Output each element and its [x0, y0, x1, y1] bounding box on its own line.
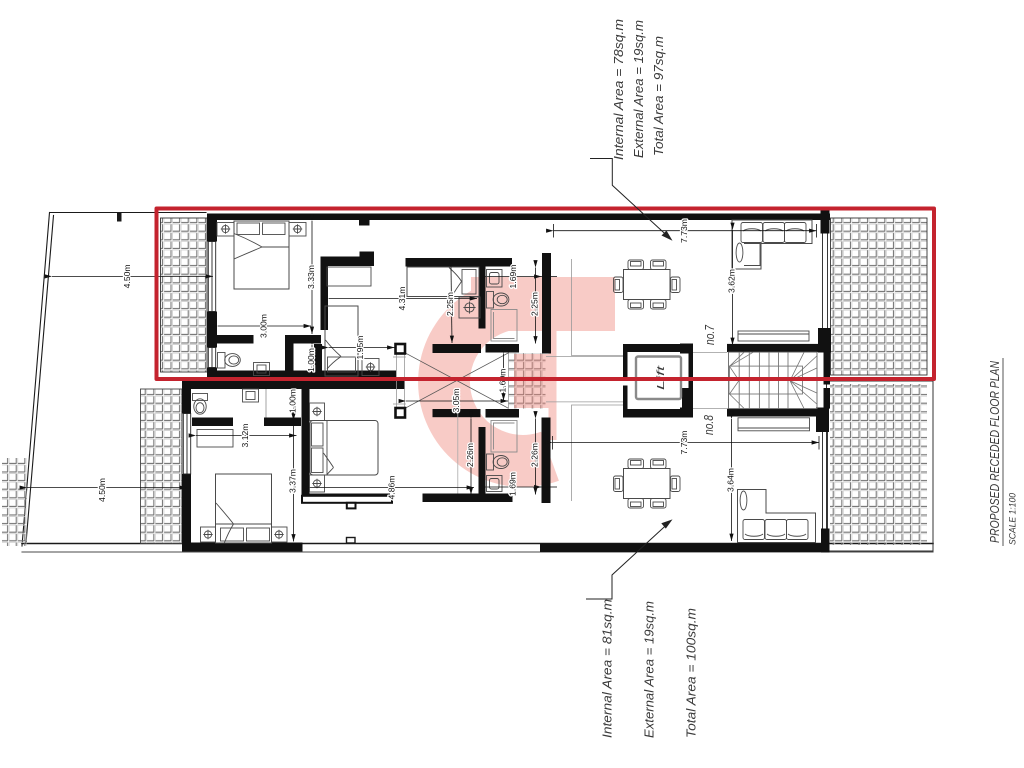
svg-text:1.95m: 1.95m: [355, 336, 365, 360]
svg-text:3.05m: 3.05m: [451, 389, 461, 413]
svg-text:no.8: no.8: [702, 415, 716, 435]
svg-text:Total Area = 97sq.m: Total Area = 97sq.m: [651, 36, 666, 156]
svg-text:3.37m: 3.37m: [288, 469, 298, 493]
svg-text:4.50m: 4.50m: [97, 478, 107, 502]
svg-text:External Area = 19sq.m: External Area = 19sq.m: [642, 601, 657, 738]
svg-text:1.00m: 1.00m: [288, 389, 298, 413]
svg-text:SCALE 1:100: SCALE 1:100: [1008, 493, 1018, 545]
svg-text:2.26m: 2.26m: [465, 443, 475, 467]
svg-text:1.00m: 1.00m: [306, 348, 316, 372]
svg-text:4.50m: 4.50m: [122, 264, 132, 288]
svg-text:2.25m: 2.25m: [445, 292, 455, 316]
svg-text:Total Area = 100sq.m: Total Area = 100sq.m: [684, 608, 699, 738]
svg-text:2.26m: 2.26m: [530, 443, 540, 467]
svg-text:no.7: no.7: [703, 324, 717, 345]
svg-text:1.69m: 1.69m: [508, 265, 518, 289]
svg-text:3.12m: 3.12m: [240, 424, 250, 448]
svg-text:4.31m: 4.31m: [397, 287, 407, 311]
svg-text:3.62m: 3.62m: [727, 269, 737, 293]
svg-text:7.73m: 7.73m: [679, 219, 689, 243]
svg-text:7.73m: 7.73m: [679, 431, 689, 455]
svg-text:1.69m: 1.69m: [508, 472, 518, 496]
svg-text:External Area = 19sq.m: External Area = 19sq.m: [631, 20, 646, 158]
svg-text:2.25m: 2.25m: [530, 292, 540, 316]
svg-text:3.00m: 3.00m: [259, 314, 269, 338]
svg-text:3.33m: 3.33m: [306, 265, 316, 289]
svg-text:Internal Area = 78sq.m: Internal Area = 78sq.m: [611, 19, 626, 160]
svg-text:PROPOSED RECEDED FLOOR PLAN: PROPOSED RECEDED FLOOR PLAN: [988, 360, 1002, 543]
svg-text:Internal Area = 81sq.m: Internal Area = 81sq.m: [600, 599, 615, 738]
svg-text:3.64m: 3.64m: [726, 468, 736, 492]
svg-text:4.86m: 4.86m: [387, 476, 397, 500]
